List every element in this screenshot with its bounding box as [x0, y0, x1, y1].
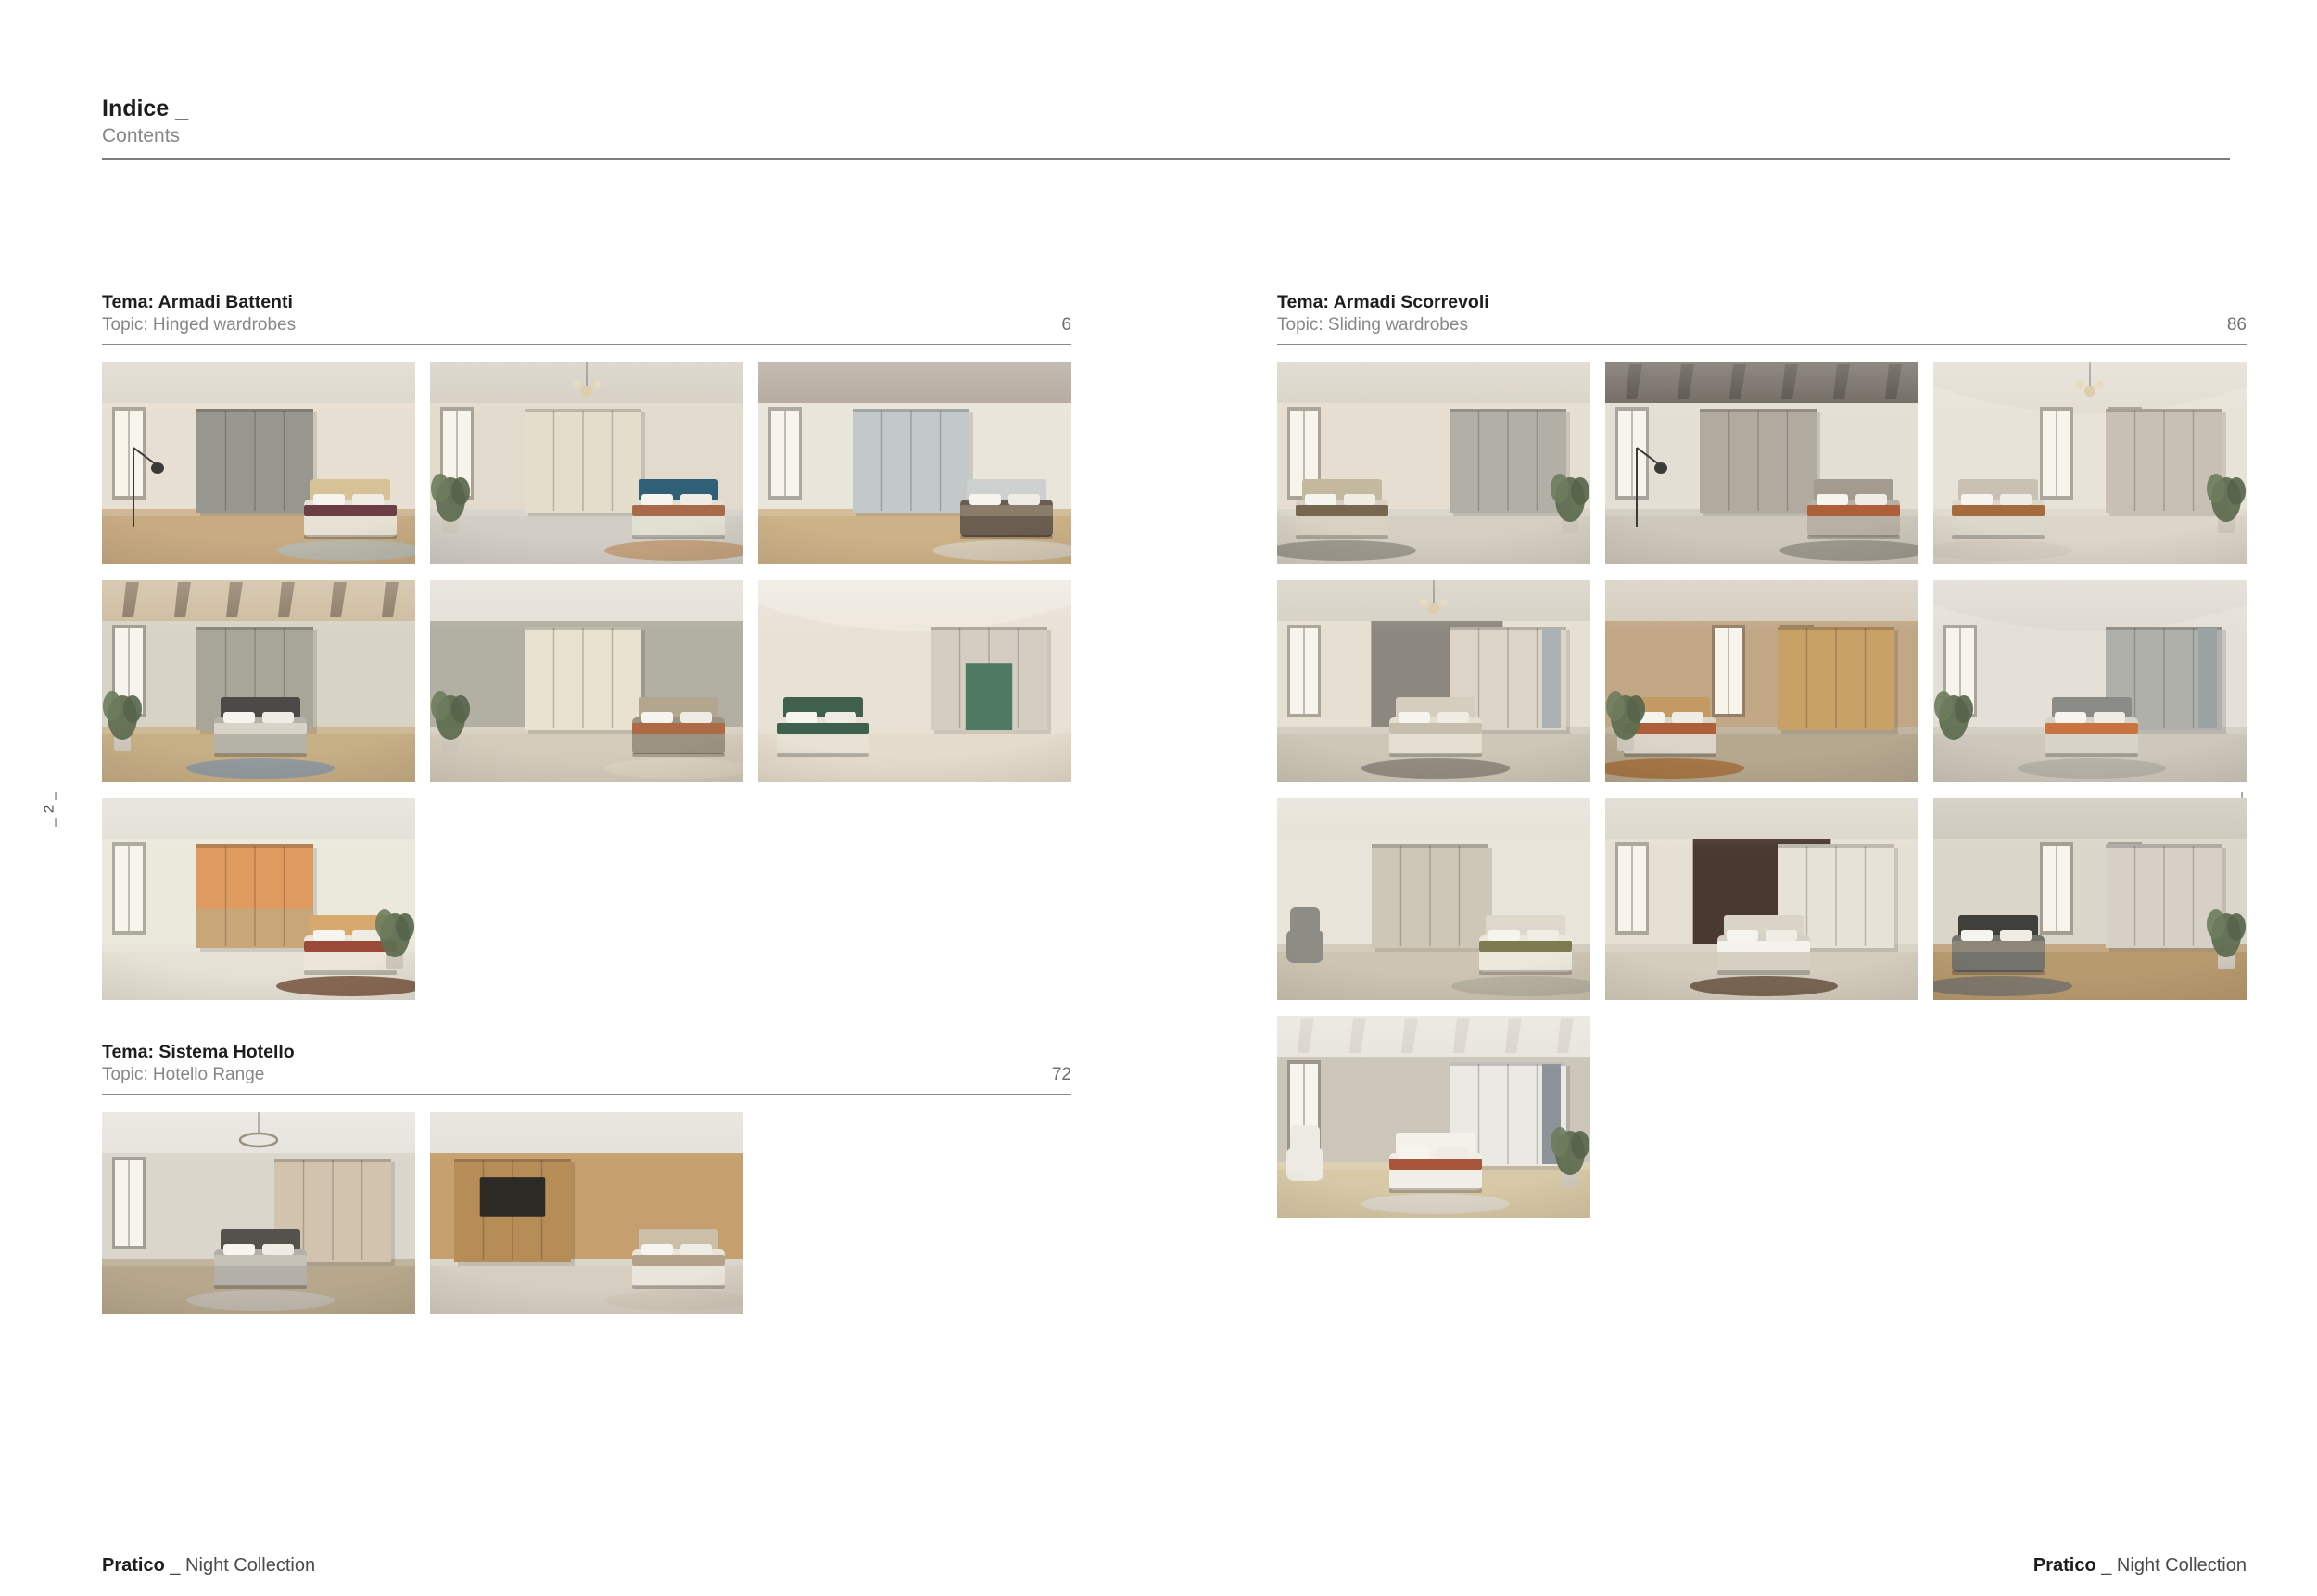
section-subtitle: Topic: Hotello Range — [102, 1065, 264, 1085]
catalog-thumbnail — [1933, 798, 2247, 1000]
brand-name: Pratico — [102, 1555, 165, 1576]
page-title-italian: Indice — [102, 95, 169, 121]
section-rule — [1277, 344, 2247, 345]
thumbnail-grid — [102, 1112, 1071, 1314]
catalog-spread: Indice _ Contents _ 2 _ _ 3 _ Tema: Arma… — [0, 0, 2317, 1596]
catalog-thumbnail — [1605, 798, 1918, 1000]
catalog-thumbnail — [430, 362, 743, 564]
section-title: Tema: Armadi Battenti — [102, 292, 1071, 313]
section-page-number: 6 — [1061, 315, 1071, 336]
section-armadi-battenti: Tema: Armadi Battenti Topic: Hinged ward… — [102, 292, 1071, 1000]
catalog-thumbnail — [1933, 362, 2247, 564]
section-subtitle: Topic: Hinged wardrobes — [102, 315, 296, 336]
catalog-thumbnail — [102, 580, 415, 782]
section-rule — [102, 344, 1071, 345]
title-underscore: _ — [175, 95, 188, 121]
page-subtitle: Contents — [102, 125, 2230, 147]
section-rule — [102, 1094, 1071, 1095]
section-armadi-scorrevoli: Tema: Armadi Scorrevoli Topic: Sliding w… — [1277, 292, 2247, 1218]
catalog-thumbnail — [430, 1112, 743, 1314]
section-subtitle-row: Topic: Hinged wardrobes 6 — [102, 315, 1071, 336]
catalog-thumbnail — [102, 798, 415, 1000]
section-sistema-hotello: Tema: Sistema Hotello Topic: Hotello Ran… — [102, 1042, 1071, 1314]
catalog-thumbnail — [1933, 580, 2247, 782]
catalog-thumbnail — [430, 580, 743, 782]
section-subtitle-row: Topic: Hotello Range 72 — [102, 1065, 1071, 1085]
section-subtitle: Topic: Sliding wardrobes — [1277, 315, 1468, 336]
brand-name: Pratico — [2033, 1555, 2096, 1576]
thumbnail-grid — [102, 362, 1071, 1000]
footer-right: Pratico _ Night Collection — [2033, 1555, 2247, 1577]
section-page-number: 72 — [1052, 1065, 1071, 1085]
catalog-thumbnail — [758, 580, 1071, 782]
catalog-thumbnail — [102, 362, 415, 564]
section-title: Tema: Sistema Hotello — [102, 1042, 1071, 1063]
page-header: Indice _ Contents — [102, 96, 2230, 160]
section-page-number: 86 — [2227, 315, 2247, 336]
catalog-thumbnail — [102, 1112, 415, 1314]
page-title: Indice _ — [102, 96, 2230, 122]
catalog-thumbnail — [1277, 362, 1590, 564]
section-subtitle-row: Topic: Sliding wardrobes 86 — [1277, 315, 2247, 336]
catalog-thumbnail — [1277, 1016, 1590, 1218]
catalog-thumbnail — [1605, 362, 1918, 564]
catalog-thumbnail — [1277, 798, 1590, 1000]
catalog-thumbnail — [1605, 580, 1918, 782]
page-number-left: _ 2 _ — [42, 788, 57, 830]
catalog-thumbnail — [758, 362, 1071, 564]
header-rule — [102, 158, 2230, 160]
thumbnail-grid — [1277, 362, 2247, 1218]
footer-left: Pratico _ Night Collection — [102, 1555, 315, 1577]
section-title: Tema: Armadi Scorrevoli — [1277, 292, 2247, 313]
catalog-thumbnail — [1277, 580, 1590, 782]
collection-name: _ Night Collection — [2101, 1555, 2247, 1576]
collection-name: _ Night Collection — [170, 1555, 315, 1576]
